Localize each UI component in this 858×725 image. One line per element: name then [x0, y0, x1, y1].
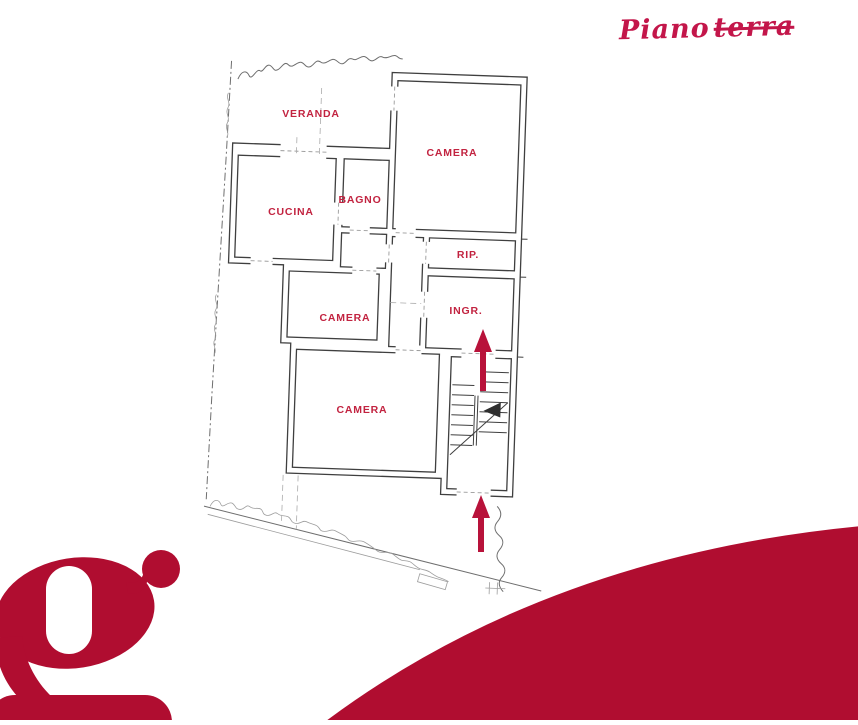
room-camera-centro	[287, 271, 379, 340]
fence-gate-mark	[485, 582, 505, 595]
grass-sketch	[208, 500, 451, 582]
property-boundary-bottom	[201, 506, 543, 591]
floor-plan-page: Pianoterra	[0, 0, 858, 720]
logo-g	[0, 546, 180, 720]
hallway	[340, 233, 386, 269]
room-label-bagno: BAGNO	[338, 194, 381, 206]
room-label-camera-nord: CAMERA	[427, 147, 478, 159]
room-label-ripostiglio: RIP.	[457, 249, 479, 261]
floor-plan-svg: VERANDA CAMERA CUCINA BAGNO RIP. INGR. C…	[0, 0, 858, 720]
room-label-veranda: VERANDA	[282, 108, 340, 120]
scanned-plan-group	[201, 49, 559, 596]
path-to-entrance-dashes	[281, 475, 298, 529]
property-fence-left	[206, 61, 231, 500]
boundary-detail	[417, 574, 448, 590]
room-label-camera-centro: CAMERA	[320, 312, 371, 324]
veranda-hedge-sketch	[238, 50, 403, 85]
logo-g-descender	[0, 695, 172, 720]
page-title-word2: terra	[713, 11, 794, 44]
room-label-ingresso: INGR.	[449, 305, 482, 317]
fence-scribble	[213, 294, 217, 354]
brand-curve	[322, 526, 858, 720]
room-stairwell	[447, 357, 512, 491]
room-label-cucina: CUCINA	[268, 206, 314, 218]
up-arrow-icon	[472, 495, 490, 552]
page-title-word1: Piano	[618, 13, 709, 46]
logo-g-ear	[142, 550, 180, 588]
page-title: Pianoterra	[618, 11, 794, 47]
room-label-camera-sud: CAMERA	[337, 404, 388, 416]
logo-g-counter	[46, 566, 92, 654]
property-boundary-bottom-inner	[206, 514, 422, 569]
